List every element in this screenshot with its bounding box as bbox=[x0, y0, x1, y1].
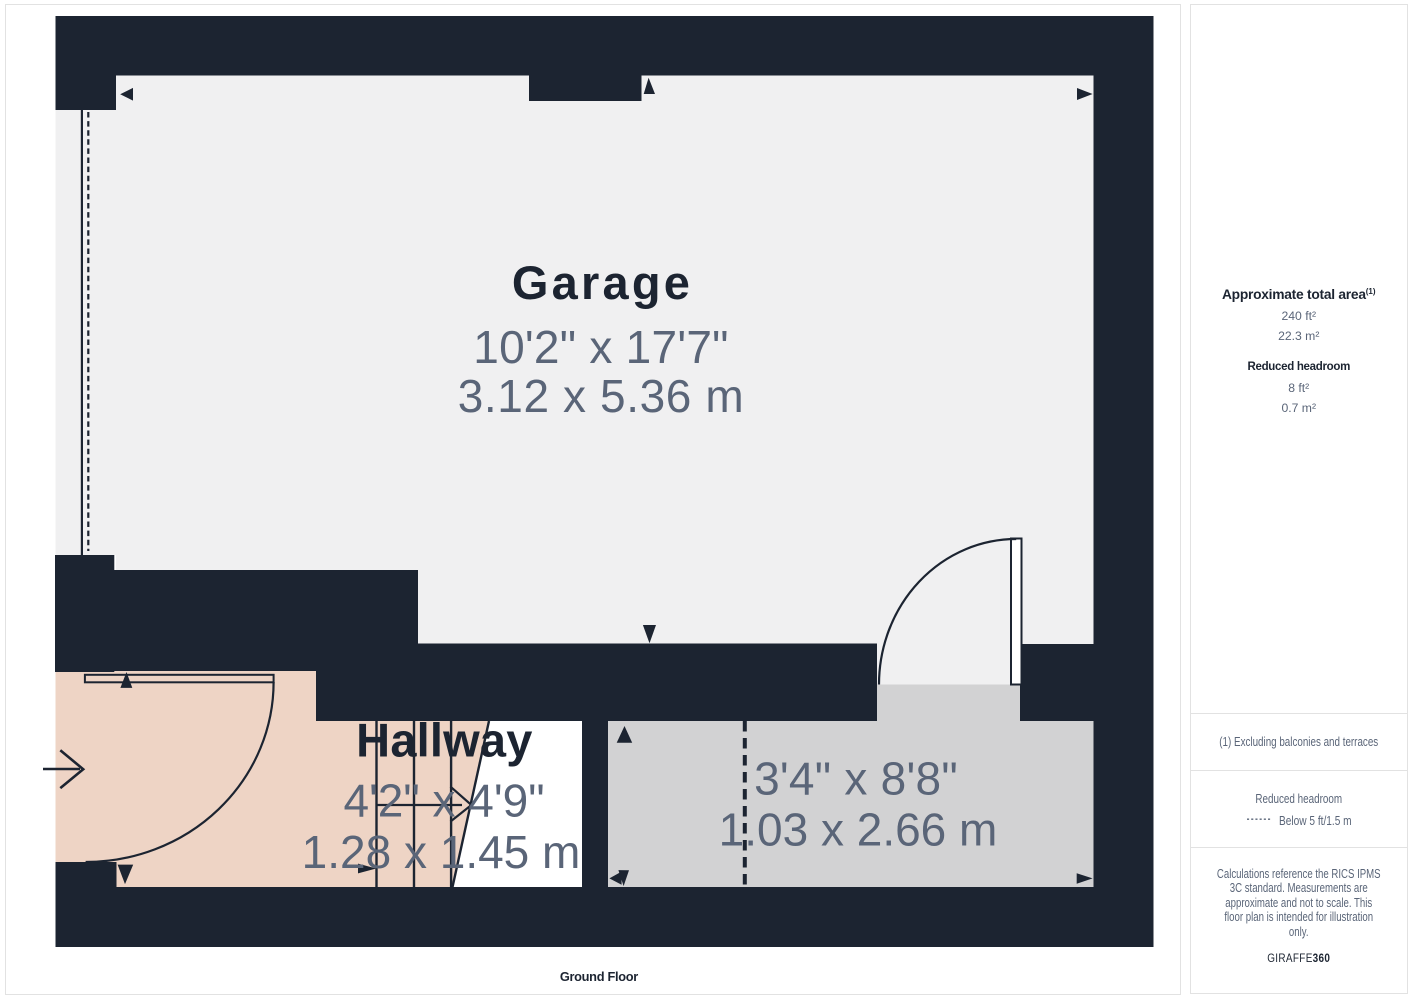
svg-text:Ground Floor: Ground Floor bbox=[560, 969, 638, 984]
svg-text:3.12 x 5.36 m: 3.12 x 5.36 m bbox=[458, 370, 745, 422]
svg-text:1.03 x 2.66 m: 1.03 x 2.66 m bbox=[719, 803, 998, 855]
svg-text:3'4" x 8'8": 3'4" x 8'8" bbox=[754, 752, 958, 804]
svg-text:10'2" x 17'7": 10'2" x 17'7" bbox=[473, 321, 729, 373]
svg-text:Hallway: Hallway bbox=[356, 713, 532, 766]
svg-text:4'2" x 4'9": 4'2" x 4'9" bbox=[343, 775, 544, 827]
svg-text:1.28 x 1.45 m: 1.28 x 1.45 m bbox=[302, 826, 581, 878]
svg-text:Garage: Garage bbox=[512, 256, 693, 309]
